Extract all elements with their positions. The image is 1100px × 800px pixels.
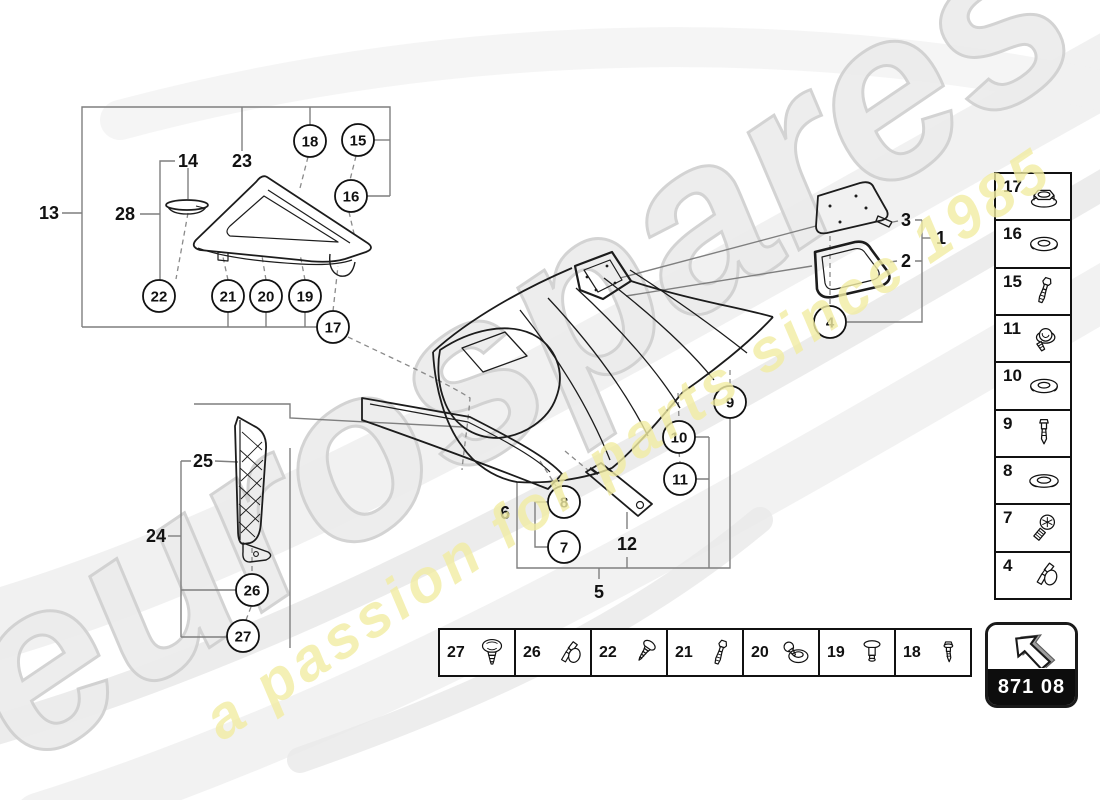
part-label-24: 24: [146, 526, 166, 546]
legend-item-number: 15: [1003, 272, 1022, 292]
callout-20[interactable]: 20: [250, 280, 282, 312]
callout-10[interactable]: 10: [663, 421, 695, 453]
watermark-overlay: a passion for parts since 1985: [0, 0, 1100, 800]
part-label-28: 28: [115, 204, 135, 224]
stamp-arrow-box: [988, 625, 1075, 669]
legend-item-number: 17: [1003, 177, 1022, 197]
part-label-23: 23: [232, 151, 252, 171]
callout-7[interactable]: 7: [548, 531, 580, 563]
watermark-background: eurospares: [0, 0, 1100, 800]
legend-item-17[interactable]: 17: [996, 174, 1070, 221]
part-label-1: 1: [936, 228, 946, 248]
leader-lines: [62, 107, 931, 648]
legend-item-number: 10: [1003, 366, 1022, 386]
washer-icon: [1024, 224, 1064, 264]
callout-26[interactable]: 26: [236, 574, 268, 606]
callout-4[interactable]: 4: [814, 306, 846, 338]
cap-disc: [166, 200, 208, 214]
legend-item-10[interactable]: 10: [996, 363, 1070, 410]
part-label-6: 6: [500, 503, 510, 523]
vent-grille: [235, 417, 271, 562]
rivet-pin-icon: [1024, 271, 1064, 311]
legend-item-21[interactable]: 21: [668, 630, 744, 675]
stamp-code: 871 08: [988, 669, 1075, 705]
grommet-screw-icon: [777, 634, 815, 672]
convertible-top-lid: [362, 252, 773, 489]
legend-item-number: 20: [751, 644, 769, 662]
part-label-2: 2: [901, 251, 911, 271]
svg-text:10: 10: [671, 430, 688, 447]
legend-item-number: 7: [1003, 508, 1012, 528]
legend-item-number: 18: [903, 644, 921, 662]
legend-item-20[interactable]: 20: [744, 630, 820, 675]
legend-item-number: 27: [447, 644, 465, 662]
arrow-up-left-icon: [1003, 626, 1061, 668]
part-drawings: [166, 176, 892, 562]
pan-screw-icon: [473, 634, 511, 672]
callout-19[interactable]: 19: [289, 280, 321, 312]
svg-text:16: 16: [343, 189, 360, 206]
legend-item-26[interactable]: 26: [516, 630, 592, 675]
legend-item-number: 16: [1003, 224, 1022, 244]
svg-text:27: 27: [235, 629, 252, 646]
svg-text:4: 4: [826, 315, 835, 332]
callout-27[interactable]: 27: [227, 620, 259, 652]
tapping-screw-icon: [625, 634, 663, 672]
svg-text:20: 20: [258, 289, 275, 306]
corner-trim-panel: [194, 176, 371, 276]
legend-item-15[interactable]: 15: [996, 269, 1070, 316]
legend-item-number: 9: [1003, 414, 1012, 434]
legend-item-number: 19: [827, 644, 845, 662]
watermark-brand: eurospares: [0, 0, 1100, 800]
svg-text:22: 22: [151, 289, 168, 306]
callout-15[interactable]: 15: [342, 124, 374, 156]
part-label-14: 14: [178, 151, 198, 171]
callout-11[interactable]: 11: [664, 463, 696, 495]
legend-item-18[interactable]: 18: [896, 630, 970, 675]
legend-item-22[interactable]: 22: [592, 630, 668, 675]
legend-item-number: 26: [523, 644, 541, 662]
parts-diagram-page: eurospares: [0, 0, 1100, 800]
clip-icon: [1024, 555, 1064, 595]
callout-22[interactable]: 22: [143, 280, 175, 312]
rivet-pin-icon: [701, 634, 739, 672]
legend-item-8[interactable]: 8: [996, 458, 1070, 505]
flange-nut-icon: [1024, 177, 1064, 217]
section-stamp[interactable]: 871 08: [985, 622, 1078, 708]
legend-item-16[interactable]: 16: [996, 221, 1070, 268]
part-label-3: 3: [901, 210, 911, 230]
svg-text:26: 26: [244, 583, 261, 600]
callout-18[interactable]: 18: [294, 125, 326, 157]
fastener-legend-sidebar: 17161511109874: [994, 172, 1072, 600]
legend-item-number: 8: [1003, 461, 1012, 481]
legend-item-4[interactable]: 4: [996, 553, 1070, 598]
hinge-bracket: [586, 463, 652, 516]
legend-item-7[interactable]: 7: [996, 505, 1070, 552]
small-rivet-icon: [929, 634, 967, 672]
clip-icon: [549, 634, 587, 672]
washer-icon: [1024, 366, 1064, 406]
screw-washer-icon: [1024, 319, 1064, 359]
legend-item-number: 4: [1003, 556, 1012, 576]
pin-icon: [1024, 413, 1064, 453]
legend-item-19[interactable]: 19: [820, 630, 896, 675]
legend-item-number: 21: [675, 644, 693, 662]
legend-item-11[interactable]: 11: [996, 316, 1070, 363]
torx-screw-icon: [1024, 508, 1064, 548]
svg-text:9: 9: [726, 395, 734, 412]
svg-text:19: 19: [297, 289, 314, 306]
legend-item-9[interactable]: 9: [996, 411, 1070, 458]
svg-text:15: 15: [350, 133, 367, 150]
callout-16[interactable]: 16: [335, 180, 367, 212]
fastener-legend-bottom: 27262221201918: [438, 628, 972, 677]
flat-washer-icon: [1024, 461, 1064, 501]
svg-text:17: 17: [325, 320, 342, 337]
callout-21[interactable]: 21: [212, 280, 244, 312]
part-label-5: 5: [594, 582, 604, 602]
push-pin-icon: [853, 634, 891, 672]
dashed-leaders: [176, 156, 830, 620]
svg-text:7: 7: [560, 540, 568, 557]
svg-text:18: 18: [302, 134, 319, 151]
callout-8[interactable]: 8: [548, 486, 580, 518]
callout-9[interactable]: 9: [714, 386, 746, 418]
svg-text:21: 21: [220, 289, 237, 306]
legend-item-number: 11: [1003, 319, 1021, 339]
part-label-12: 12: [617, 534, 637, 554]
callout-17[interactable]: 17: [317, 311, 349, 343]
corner-plate-and-gasket: [815, 182, 892, 297]
part-label-25: 25: [193, 451, 213, 471]
part-label-13: 13: [39, 203, 59, 223]
legend-item-number: 22: [599, 644, 617, 662]
svg-text:11: 11: [672, 472, 688, 489]
legend-item-27[interactable]: 27: [440, 630, 516, 675]
svg-text:8: 8: [560, 495, 568, 512]
